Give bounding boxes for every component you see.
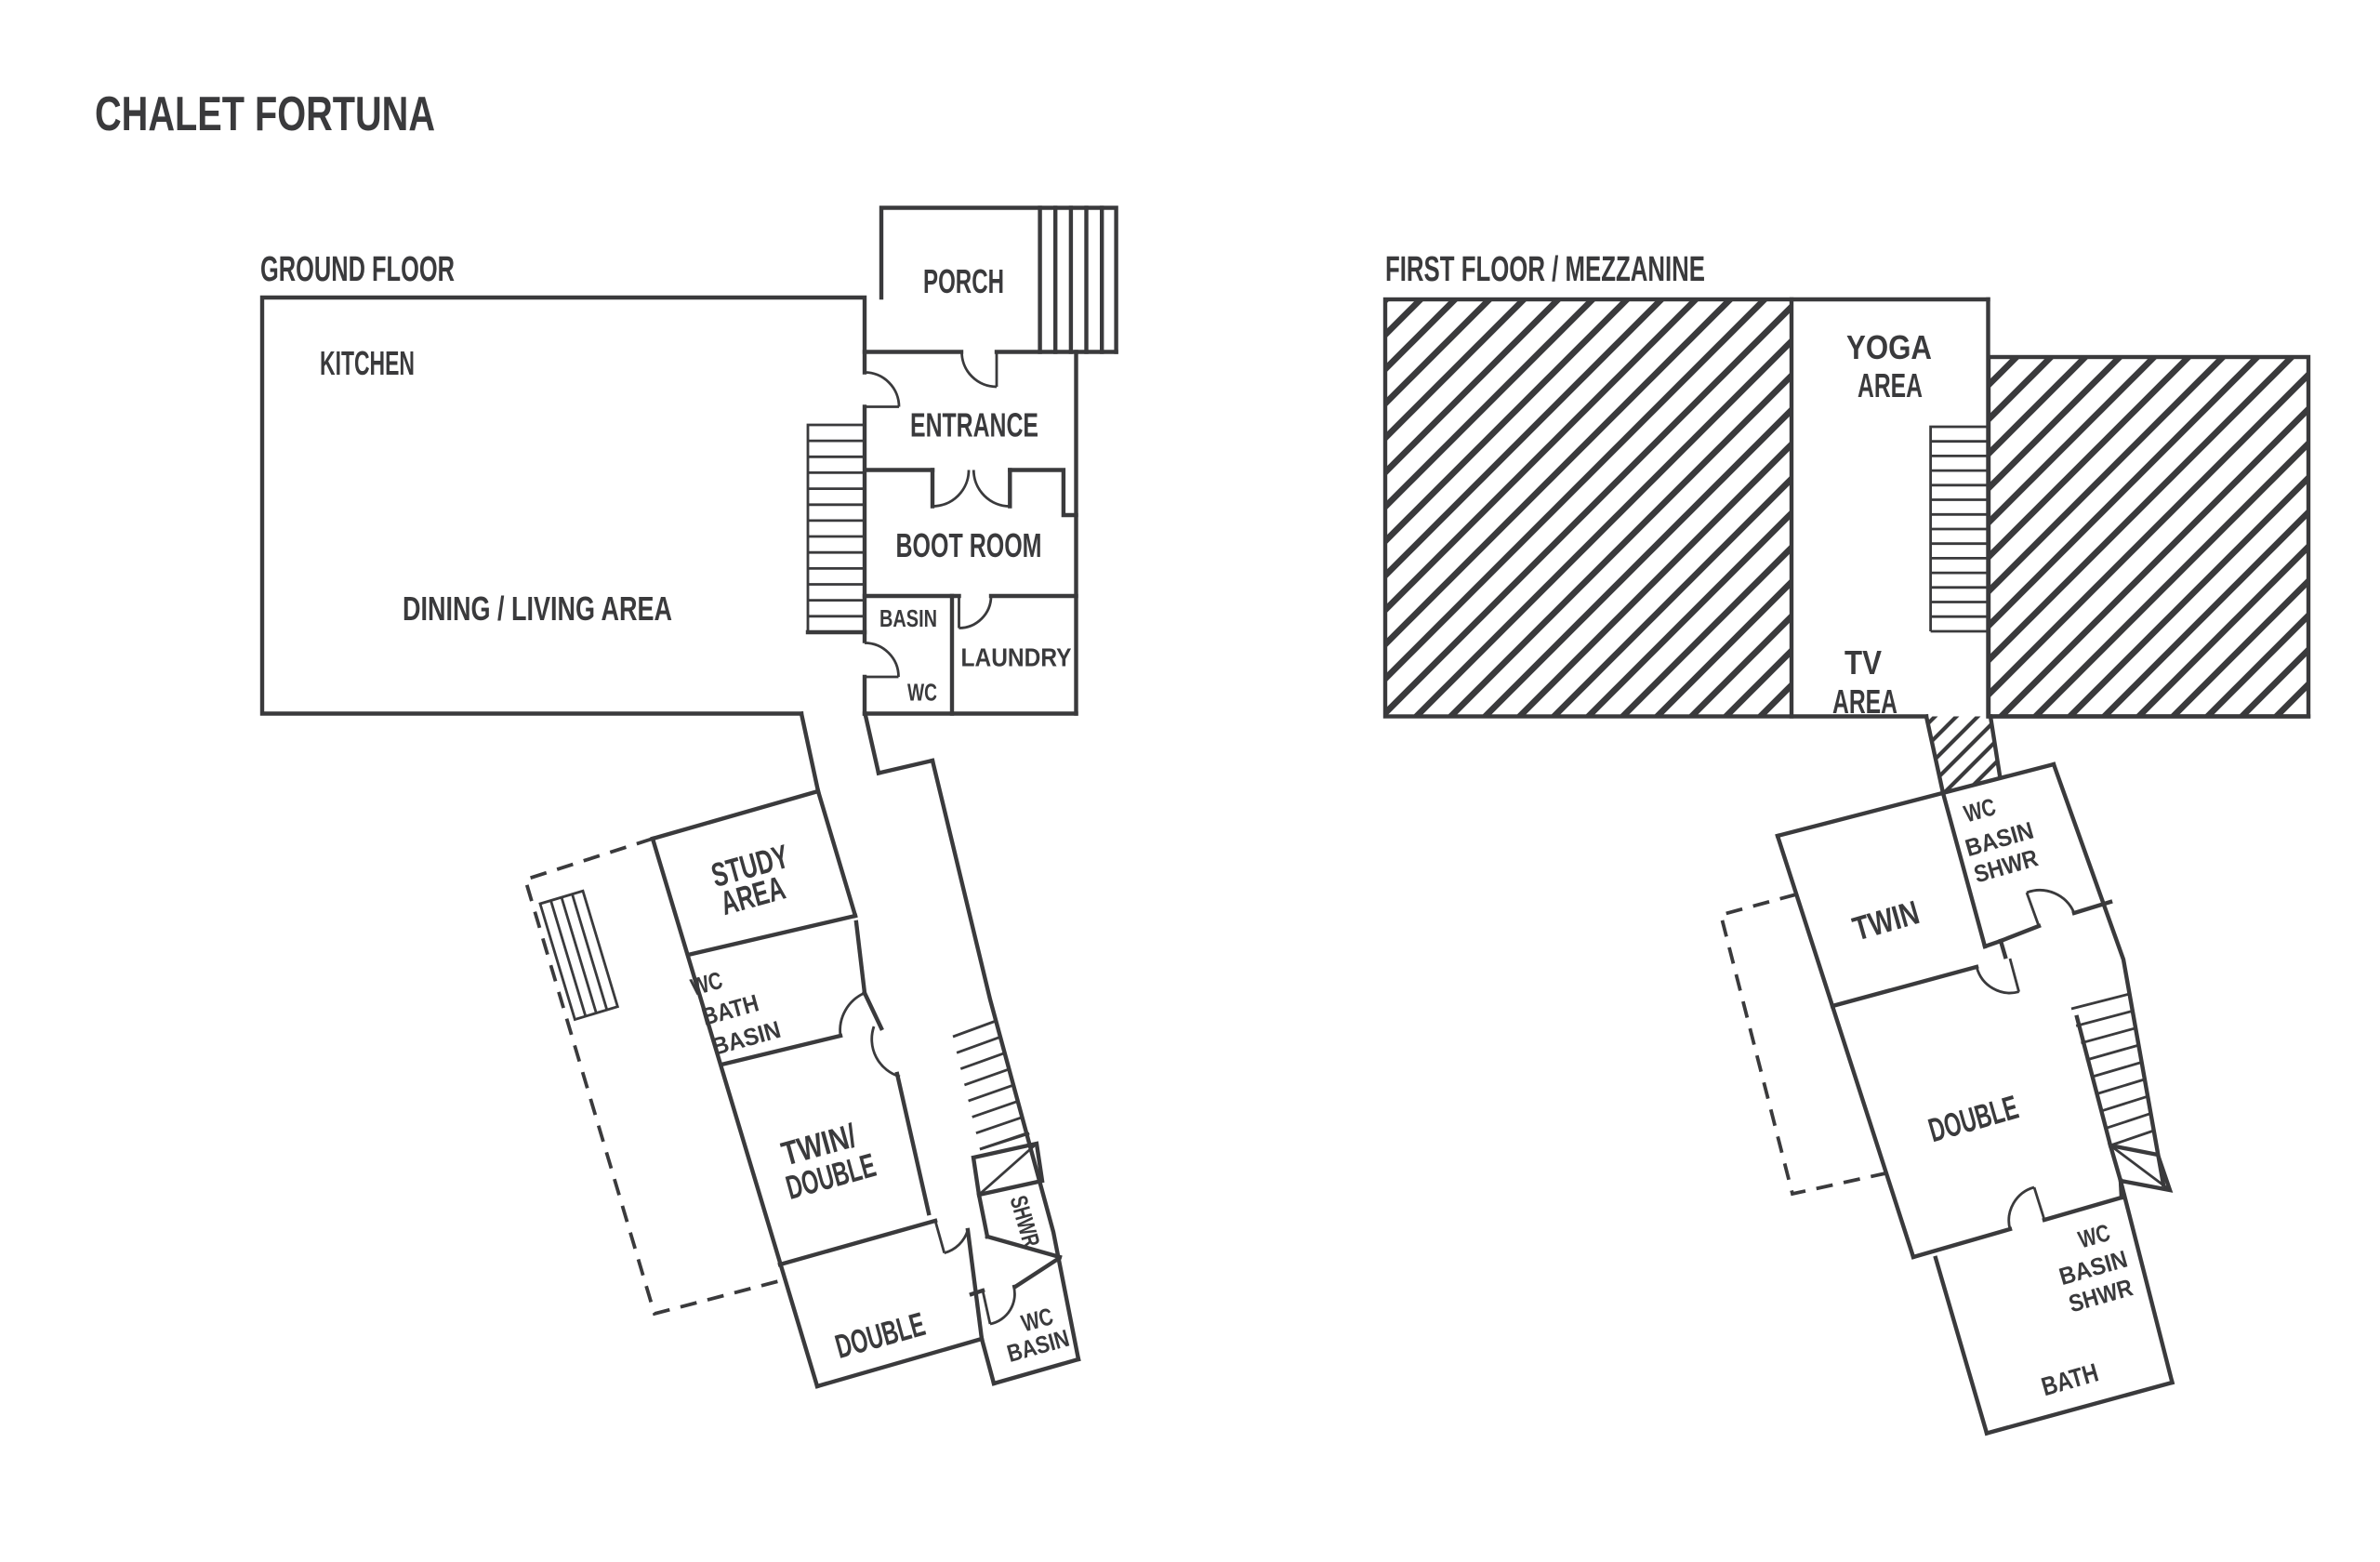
svg-text:YOGA: YOGA [1846,328,1932,366]
svg-text:CHALET FORTUNA: CHALET FORTUNA [95,87,435,141]
svg-text:LAUNDRY: LAUNDRY [961,643,1072,672]
svg-text:TV: TV [1844,643,1882,682]
svg-text:BOOT ROOM: BOOT ROOM [896,526,1042,564]
svg-text:AREA: AREA [1832,682,1897,721]
svg-text:PORCH: PORCH [923,262,1004,300]
svg-text:BASIN: BASIN [879,604,937,632]
svg-text:ENTRANCE: ENTRANCE [910,406,1038,444]
svg-text:WC: WC [907,679,937,707]
svg-text:DINING / LIVING AREA: DINING / LIVING AREA [403,589,672,628]
svg-text:AREA: AREA [1858,366,1923,404]
svg-text:KITCHEN: KITCHEN [320,344,415,382]
svg-text:GROUND FLOOR: GROUND FLOOR [260,250,455,289]
svg-text:FIRST FLOOR / MEZZANINE: FIRST FLOOR / MEZZANINE [1385,250,1705,289]
